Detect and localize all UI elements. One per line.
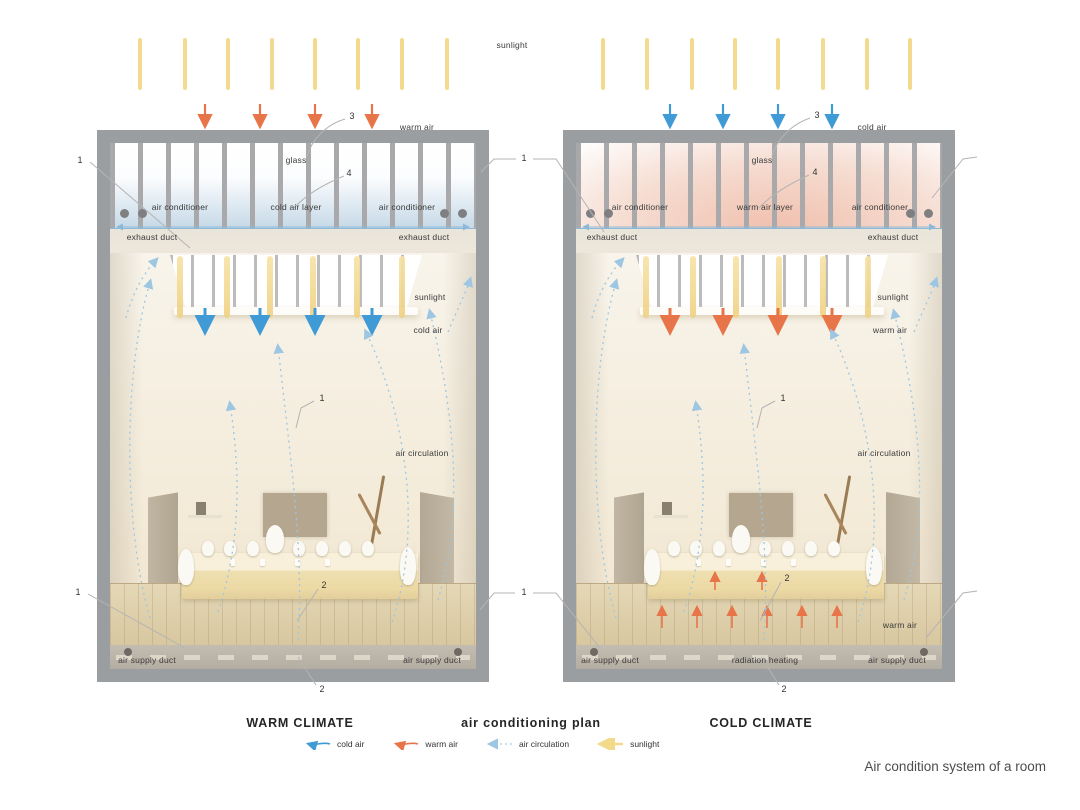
sunbeam-icon xyxy=(776,256,782,318)
callout-1: 1 xyxy=(319,393,324,403)
cold-climate-title: COLD CLIMATE xyxy=(709,716,812,730)
glass-label: glass xyxy=(752,156,773,165)
air-conditioner-unit-icon xyxy=(138,209,147,218)
sunlight-ray xyxy=(776,38,780,90)
air-conditioner-label: air conditioner xyxy=(612,203,668,212)
cold-air-arrow-icon xyxy=(302,738,332,750)
sunlight-arrow-icon xyxy=(595,738,625,750)
radiation-heating-label: radiation heating xyxy=(732,656,798,665)
sunbeam-icon xyxy=(399,256,405,318)
cold-air-label: cold air xyxy=(413,326,442,335)
callout-2: 2 xyxy=(321,580,326,590)
warm-air-entry-label: warm air xyxy=(400,123,434,132)
sunlight-ray xyxy=(356,38,360,90)
figure xyxy=(828,541,840,556)
legend-label: sunlight xyxy=(630,739,659,749)
floor-warm-air-label: warm air xyxy=(883,621,917,630)
right-door xyxy=(886,492,920,592)
legend: cold air warm air air circulation sunlig… xyxy=(302,738,742,750)
figure-standing xyxy=(866,547,882,585)
branch-decor xyxy=(370,475,385,546)
cold-air-entry-arrows xyxy=(670,104,832,125)
ceiling-cove xyxy=(174,307,418,315)
air-circulation-label: air circulation xyxy=(395,449,448,458)
legend-item-cold-air: cold air xyxy=(302,738,364,750)
sunlight-ray xyxy=(445,38,449,90)
table-item xyxy=(230,559,235,566)
sunbeam-icon xyxy=(224,256,230,318)
air-conditioner-unit-icon xyxy=(586,209,595,218)
skylight xyxy=(170,255,422,307)
skylight xyxy=(636,255,888,307)
sunbeam-icon xyxy=(733,256,739,318)
sunlight-ray xyxy=(313,38,317,90)
air-conditioner-label: air conditioner xyxy=(379,203,435,212)
air-circulation-label: air circulation xyxy=(857,449,910,458)
sunbeam-icon xyxy=(820,256,826,318)
ceiling-cove xyxy=(640,307,884,315)
sunlight-ray xyxy=(865,38,869,90)
sunlight-label: sunlight xyxy=(878,293,909,302)
air-supply-duct-label: air supply duct xyxy=(581,656,639,665)
legend-label: air circulation xyxy=(519,739,569,749)
wall-shelf xyxy=(188,515,222,518)
speaker-box xyxy=(196,502,206,515)
table-item xyxy=(295,559,300,566)
top-sunlight-label: sunlight xyxy=(497,41,528,50)
sunlight-ray xyxy=(601,38,605,90)
callout-1: 1 xyxy=(780,393,785,403)
figure-caption: Air condition system of a room xyxy=(864,759,1046,774)
callout-1: 1 xyxy=(521,153,526,163)
figure xyxy=(690,541,702,556)
air-conditioner-label: air conditioner xyxy=(852,203,908,212)
callout-2: 2 xyxy=(781,684,786,694)
sunlight-ray xyxy=(733,38,737,90)
left-door xyxy=(148,492,178,591)
figure xyxy=(224,541,236,556)
room-interior: sunlight warm air air circulation warm a… xyxy=(576,253,942,645)
speaker-box xyxy=(662,502,672,515)
table-item xyxy=(791,559,796,566)
air-conditioner-unit-icon xyxy=(458,209,467,218)
warm-air-label: warm air xyxy=(873,326,907,335)
figure xyxy=(782,541,794,556)
sunbeam-icon xyxy=(690,256,696,318)
figure-central xyxy=(266,525,284,553)
dining-table xyxy=(182,553,418,599)
air-layer-label: cold air layer xyxy=(271,203,322,212)
air-supply-duct-label: air supply duct xyxy=(118,656,176,665)
sunlight-ray xyxy=(400,38,404,90)
sunlight-ray xyxy=(138,38,142,90)
figure xyxy=(713,541,725,556)
air-supply-duct-label: air supply duct xyxy=(403,656,461,665)
figure xyxy=(316,541,328,556)
table-item xyxy=(696,559,701,566)
sunbeam-icon xyxy=(643,256,649,318)
warm-air-arrow-icon xyxy=(390,738,420,750)
figure xyxy=(362,541,374,556)
diagram-canvas: sunlight glass air conditioner cold air … xyxy=(0,0,1080,810)
air-conditioner-unit-icon xyxy=(924,209,933,218)
figure-central xyxy=(732,525,750,553)
right-door xyxy=(420,492,454,592)
figure-standing xyxy=(178,549,194,585)
exhaust-duct-label: exhaust duct xyxy=(127,233,178,242)
warm-air-entry-arrows xyxy=(205,104,372,125)
dining-table xyxy=(648,553,884,599)
sunlight-ray xyxy=(183,38,187,90)
figure-standing xyxy=(400,547,416,585)
glass-label: glass xyxy=(286,156,307,165)
sunlight-ray xyxy=(821,38,825,90)
sunlight-ray xyxy=(270,38,274,90)
sunlight-ray xyxy=(226,38,230,90)
air-circulation-arrow-icon xyxy=(484,738,514,750)
plan-title: air conditioning plan xyxy=(461,716,601,730)
callout-2: 2 xyxy=(319,684,324,694)
warm-climate-title: WARM CLIMATE xyxy=(246,716,353,730)
callout-3: 3 xyxy=(814,110,819,120)
callout-4: 4 xyxy=(346,168,351,178)
exhaust-duct-label: exhaust duct xyxy=(868,233,919,242)
cold-climate-panel: glass air conditioner warm air layer air… xyxy=(563,130,955,682)
branch-decor xyxy=(836,475,851,546)
sunlight-ray xyxy=(690,38,694,90)
sunlight-ray xyxy=(908,38,912,90)
air-conditioner-label: air conditioner xyxy=(152,203,208,212)
sunbeam-icon xyxy=(177,256,183,318)
air-conditioner-unit-icon xyxy=(120,209,129,218)
figure xyxy=(668,541,680,556)
sunbeam-icon xyxy=(354,256,360,318)
callout-1: 1 xyxy=(75,587,80,597)
callout-1: 1 xyxy=(77,155,82,165)
table-item xyxy=(325,559,330,566)
legend-label: warm air xyxy=(425,739,458,749)
callout-1: 1 xyxy=(521,587,526,597)
figure xyxy=(759,541,771,556)
sunbeam-icon xyxy=(267,256,273,318)
callout-4: 4 xyxy=(812,167,817,177)
table-item xyxy=(260,559,265,566)
table-item xyxy=(761,559,766,566)
warm-climate-panel: glass air conditioner cold air layer air… xyxy=(97,130,489,682)
figure xyxy=(339,541,351,556)
exhaust-duct-label: exhaust duct xyxy=(399,233,450,242)
air-layer-label: warm air layer xyxy=(737,203,793,212)
legend-item-warm-air: warm air xyxy=(390,738,458,750)
room-interior: sunlight cold air air circulation xyxy=(110,253,476,645)
wall-shelf xyxy=(654,515,688,518)
left-door xyxy=(614,492,644,591)
figure-standing xyxy=(644,549,660,585)
sunbeam-icon xyxy=(865,256,871,318)
exhaust-duct-label: exhaust duct xyxy=(587,233,638,242)
legend-label: cold air xyxy=(337,739,364,749)
table-item xyxy=(726,559,731,566)
callout-3: 3 xyxy=(349,111,354,121)
sunbeam-icon xyxy=(310,256,316,318)
figure xyxy=(202,541,214,556)
figure xyxy=(805,541,817,556)
sunlight-ray xyxy=(645,38,649,90)
cold-air-entry-label: cold air xyxy=(857,123,886,132)
figure xyxy=(293,541,305,556)
air-supply-duct-label: air supply duct xyxy=(868,656,926,665)
callout-2: 2 xyxy=(784,573,789,583)
legend-item-air-circulation: air circulation xyxy=(484,738,569,750)
air-conditioner-unit-icon xyxy=(440,209,449,218)
figure xyxy=(247,541,259,556)
sunlight-label: sunlight xyxy=(415,293,446,302)
legend-item-sunlight: sunlight xyxy=(595,738,659,750)
